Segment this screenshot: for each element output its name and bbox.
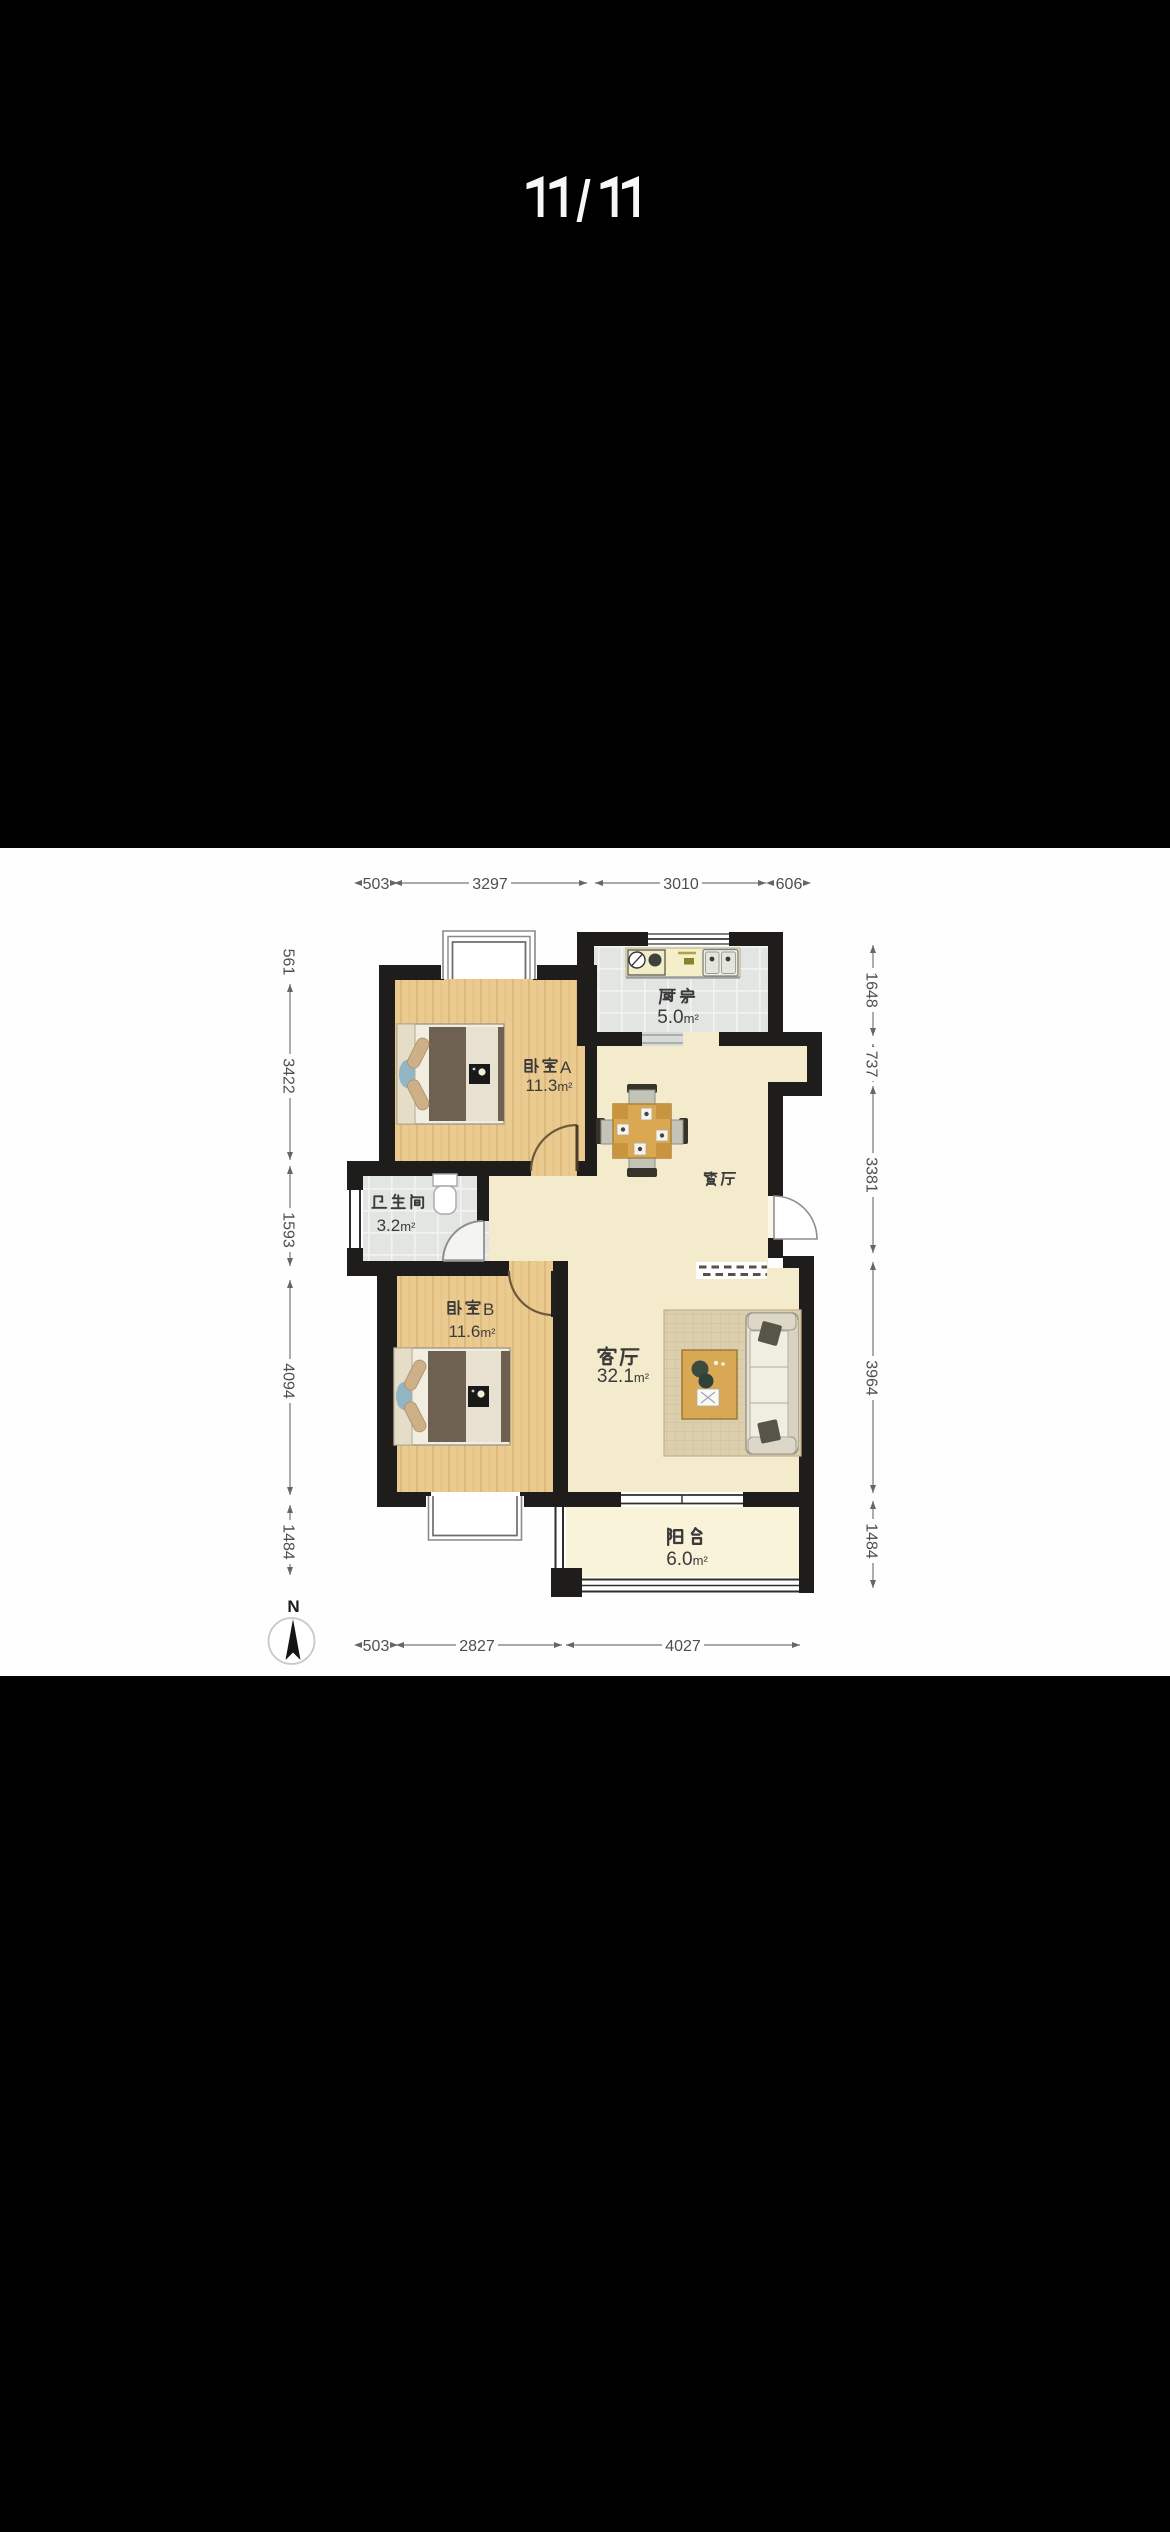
svg-text:11.6m²: 11.6m² xyxy=(449,1322,497,1341)
svg-text:3.2m²: 3.2m² xyxy=(377,1216,416,1235)
svg-text:503: 503 xyxy=(363,876,390,893)
svg-text:4027: 4027 xyxy=(665,1638,701,1655)
svg-text:A: A xyxy=(560,1058,572,1077)
svg-text:3010: 3010 xyxy=(663,876,699,893)
svg-text:1484: 1484 xyxy=(280,1524,297,1560)
svg-text:3381: 3381 xyxy=(863,1157,880,1193)
svg-text:3964: 3964 xyxy=(863,1360,880,1396)
svg-text:32.1m²: 32.1m² xyxy=(597,1366,650,1387)
svg-text:3297: 3297 xyxy=(472,876,508,893)
svg-text:737: 737 xyxy=(863,1051,880,1078)
svg-text:4094: 4094 xyxy=(280,1363,297,1399)
svg-text:3422: 3422 xyxy=(280,1058,297,1094)
svg-text:N: N xyxy=(287,1597,299,1616)
svg-text:1648: 1648 xyxy=(863,972,880,1008)
svg-text:1484: 1484 xyxy=(863,1523,880,1559)
svg-text:561: 561 xyxy=(280,949,297,976)
svg-text:606: 606 xyxy=(776,876,803,893)
svg-text:11.3m²: 11.3m² xyxy=(526,1076,574,1095)
svg-text:B: B xyxy=(483,1300,494,1319)
svg-text:5.0m²: 5.0m² xyxy=(657,1007,699,1028)
svg-text:6.0m²: 6.0m² xyxy=(666,1549,708,1570)
svg-text:503: 503 xyxy=(363,1638,390,1655)
svg-text:1593: 1593 xyxy=(280,1212,297,1248)
svg-text:2827: 2827 xyxy=(459,1638,495,1655)
